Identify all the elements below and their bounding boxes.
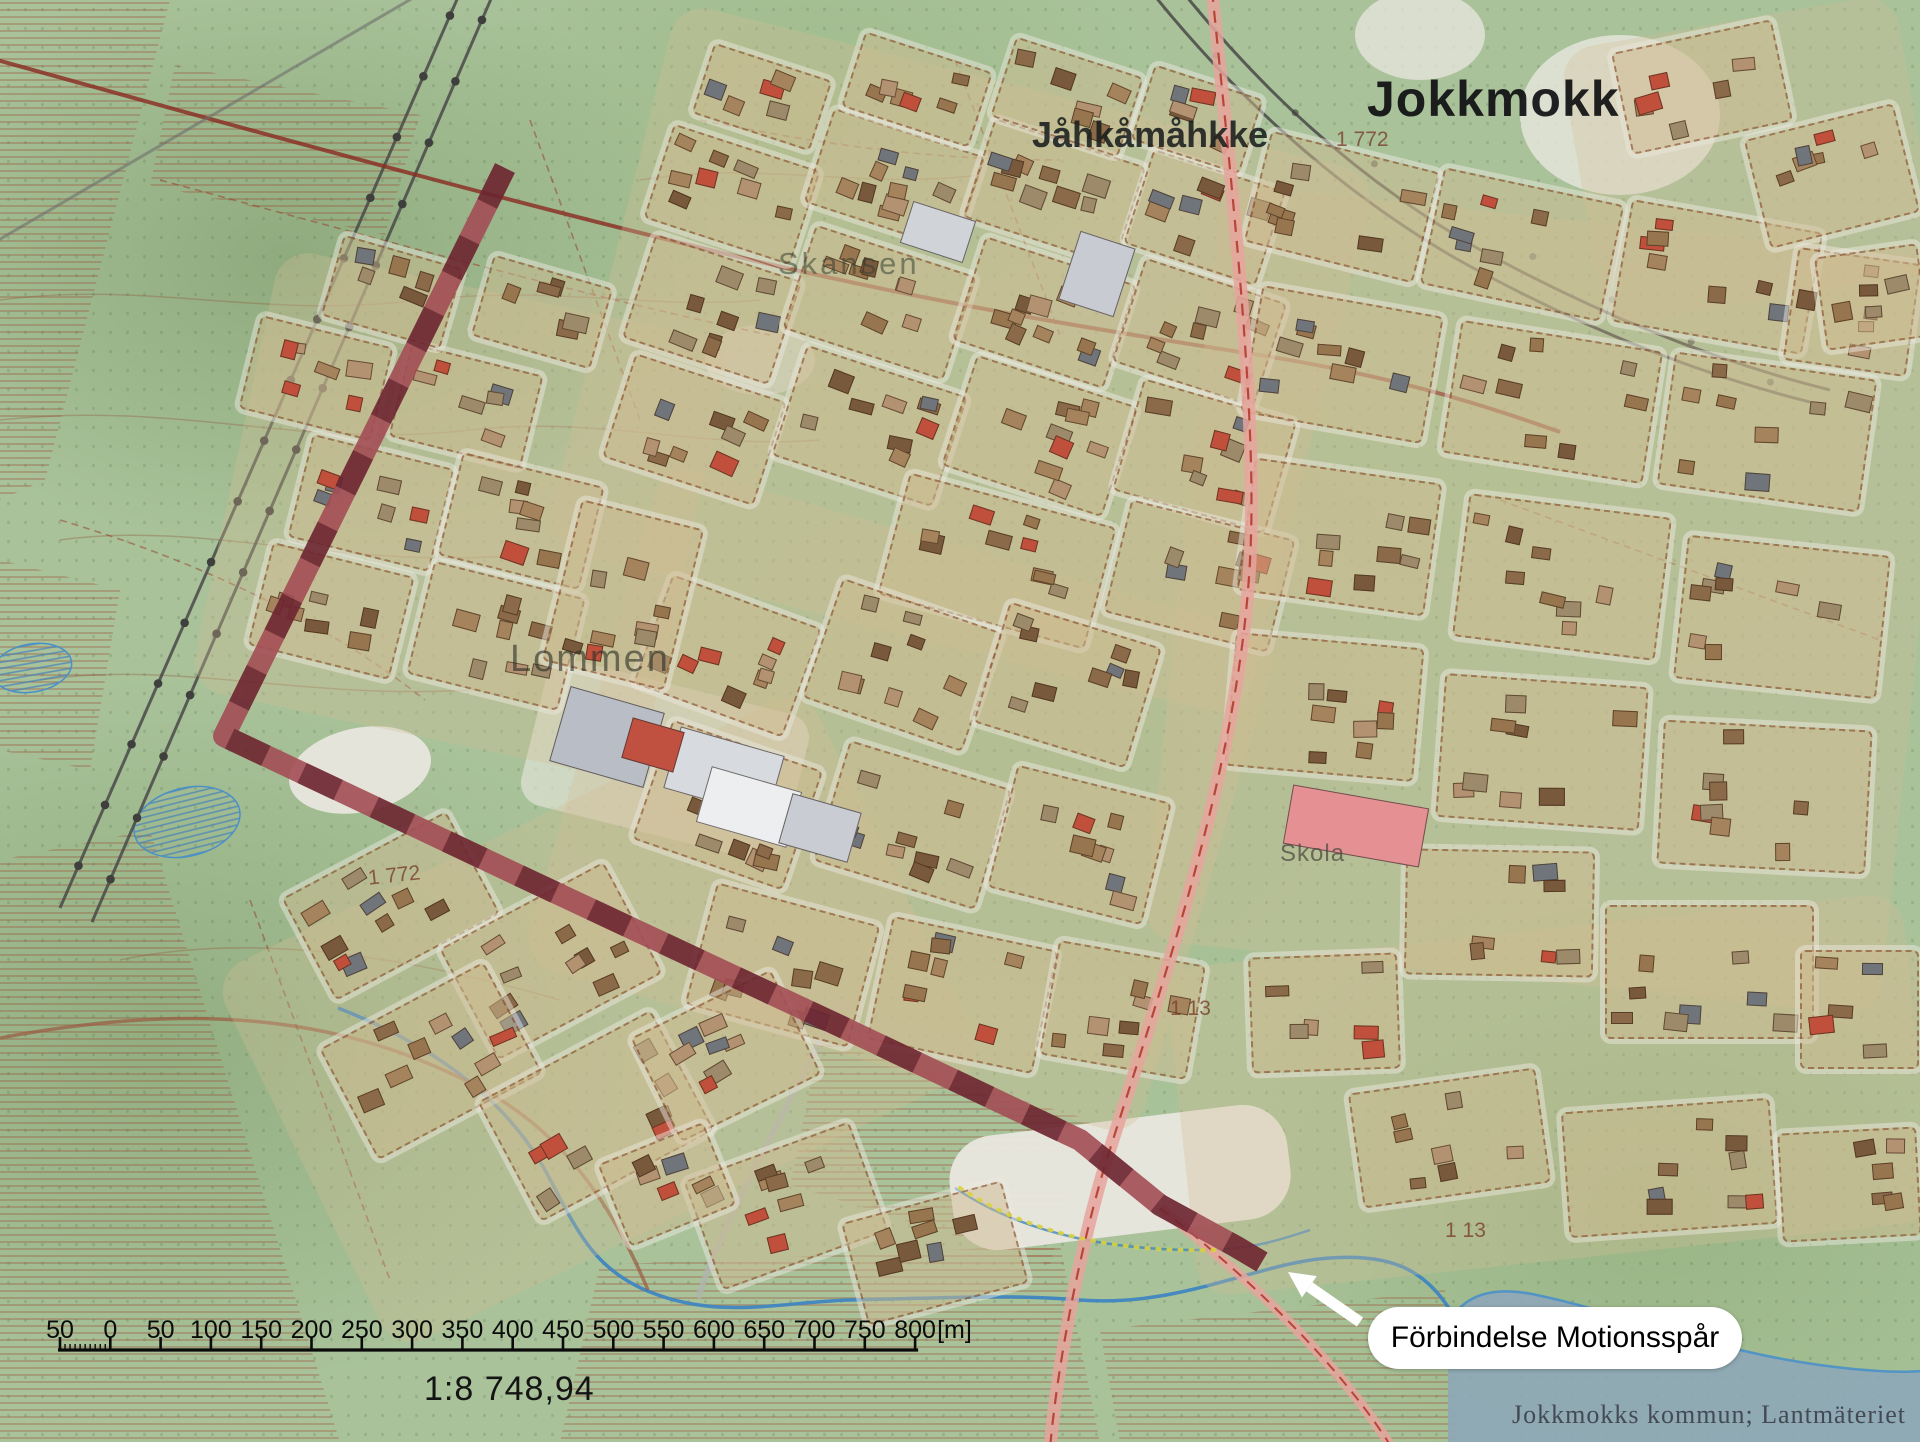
- annotation-layer: [0, 0, 1920, 1442]
- map-canvas[interactable]: JokkmokkJåhkåmåhkkeSkansenLommenSkola1 7…: [0, 0, 1920, 1442]
- trail-path: [224, 168, 1262, 1262]
- callout-arrow: [1288, 1272, 1360, 1322]
